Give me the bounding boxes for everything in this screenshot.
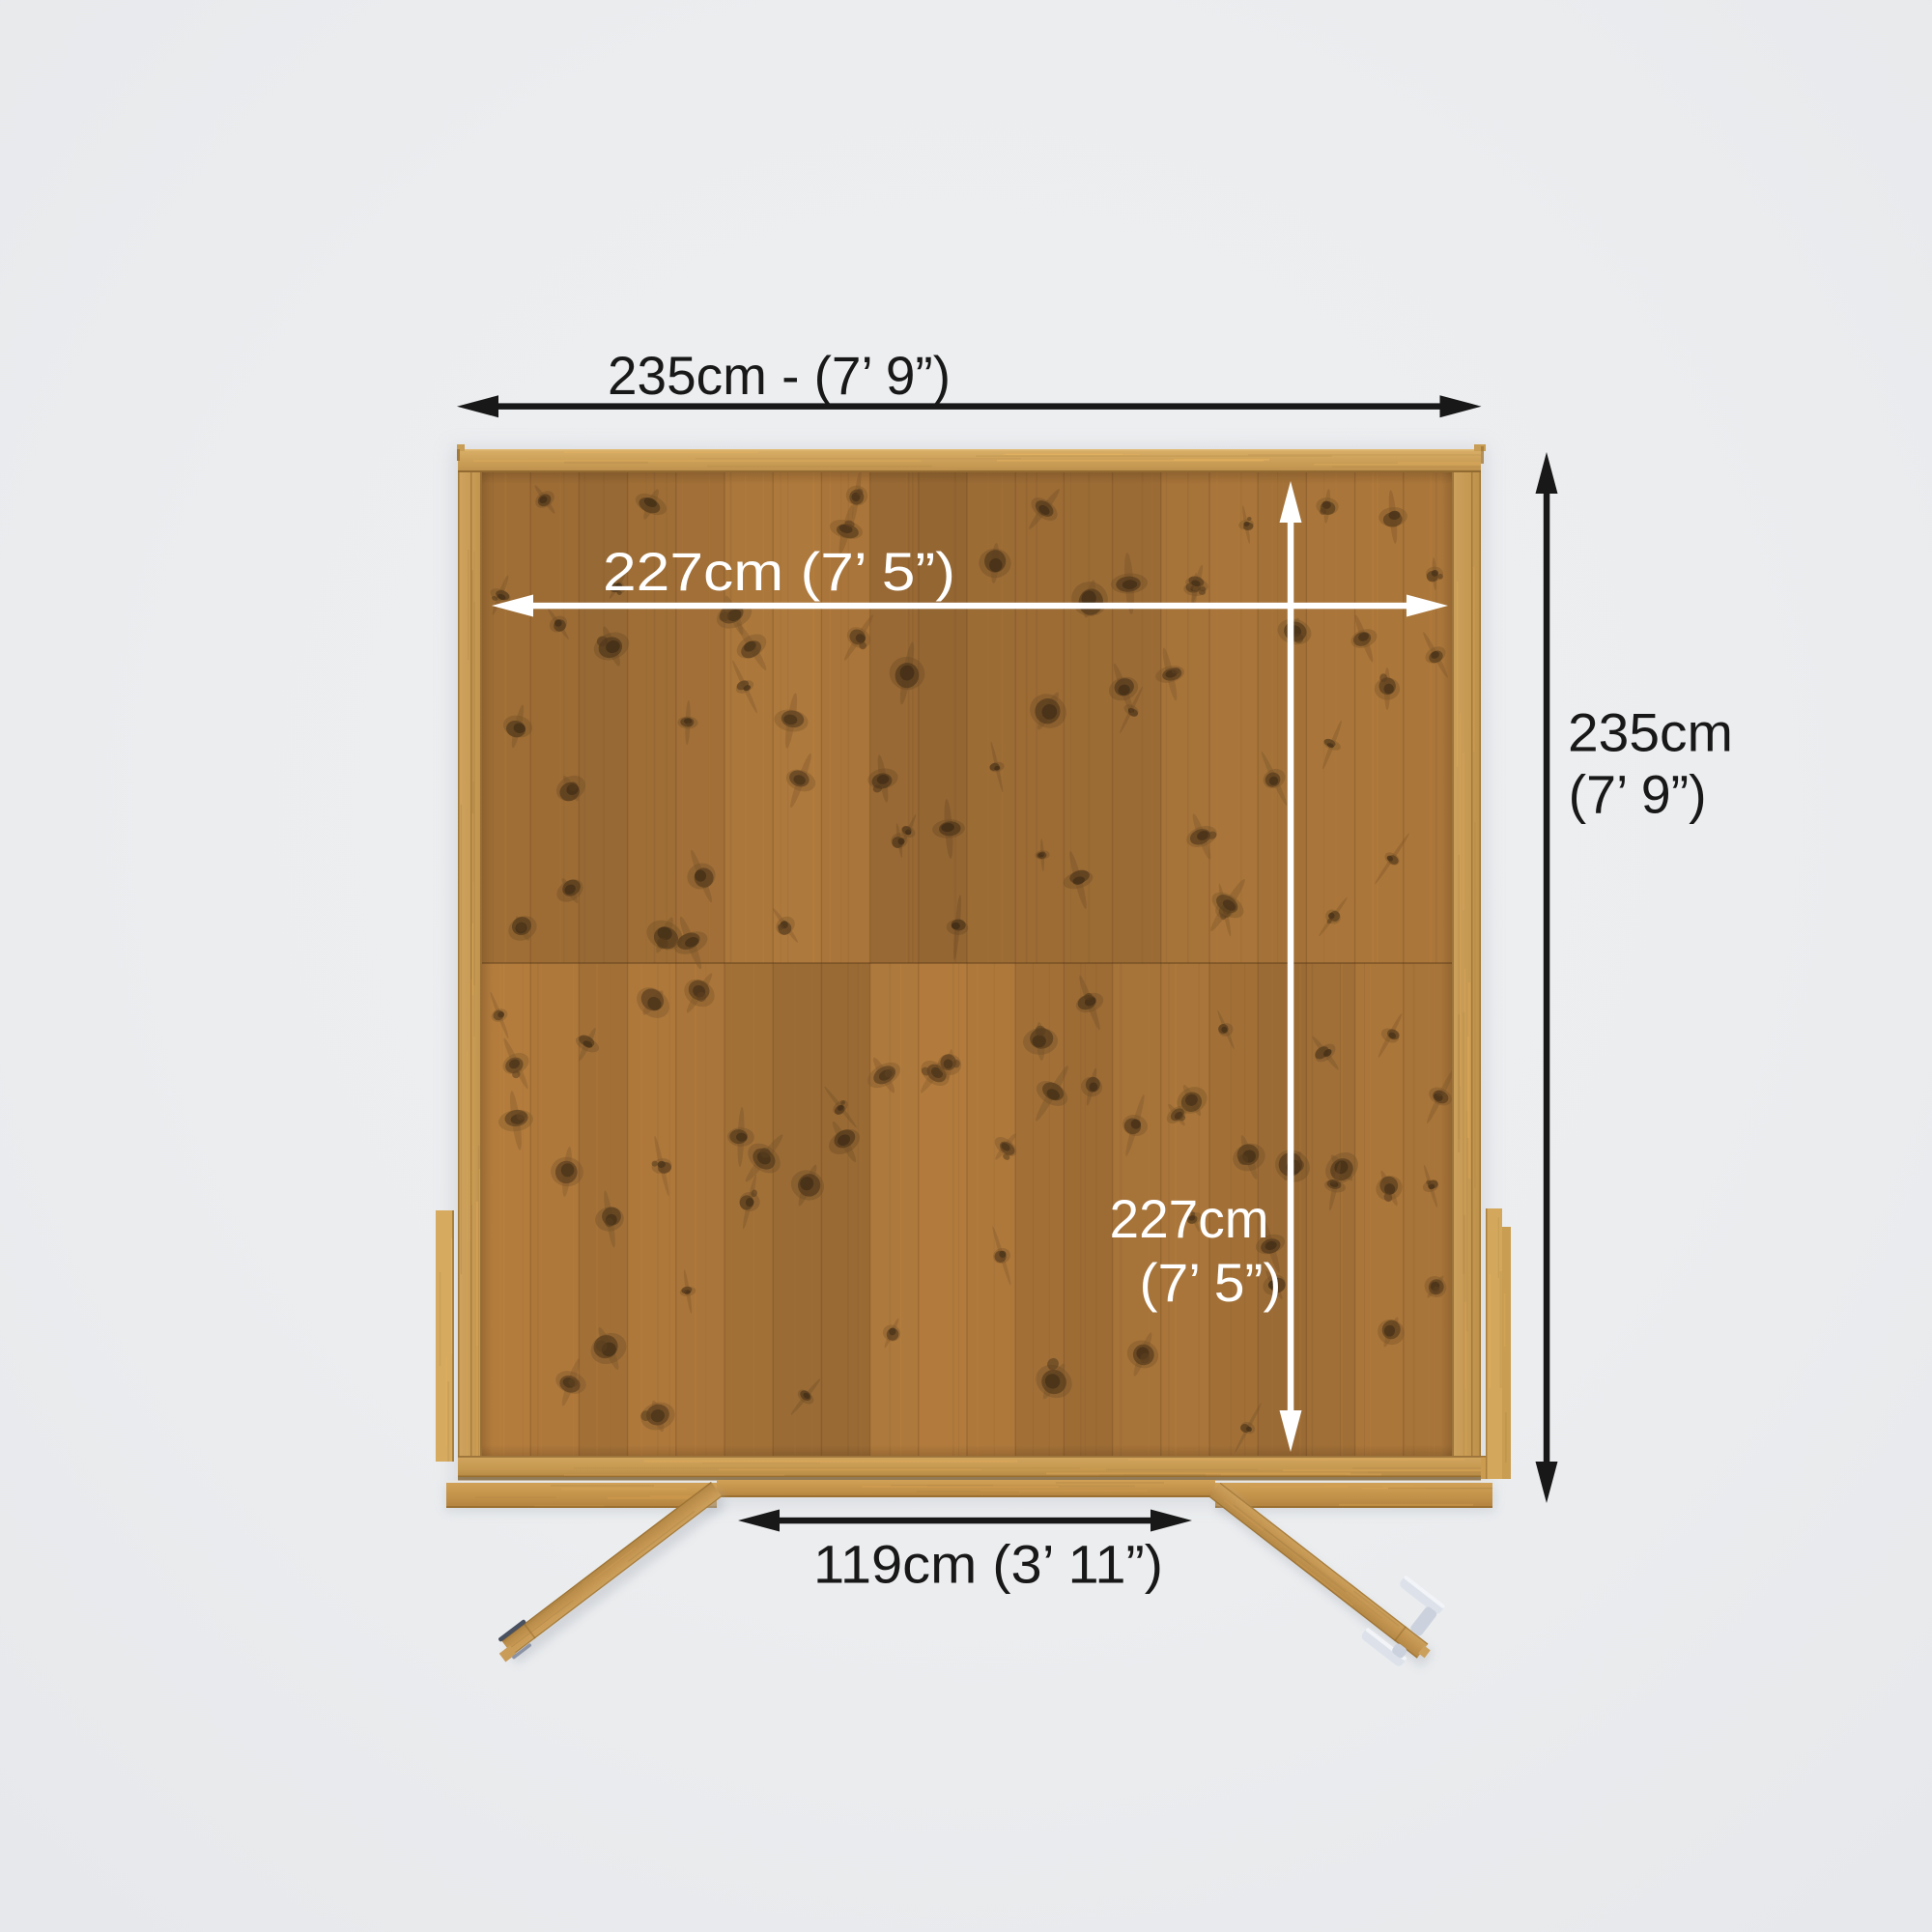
svg-text:119cm (3’ 11”): 119cm (3’ 11”) (813, 1534, 1163, 1595)
svg-text:235cm - (7’ 9”): 235cm - (7’ 9”) (608, 345, 951, 406)
svg-text:227cm (7’ 5”): 227cm (7’ 5”) (603, 541, 955, 602)
svg-text:227cm: 227cm (1110, 1188, 1269, 1249)
svg-text:235cm: 235cm (1568, 702, 1733, 763)
svg-text:(7’ 9”): (7’ 9”) (1569, 764, 1707, 825)
svg-text:(7’ 5”): (7’ 5”) (1140, 1252, 1282, 1313)
